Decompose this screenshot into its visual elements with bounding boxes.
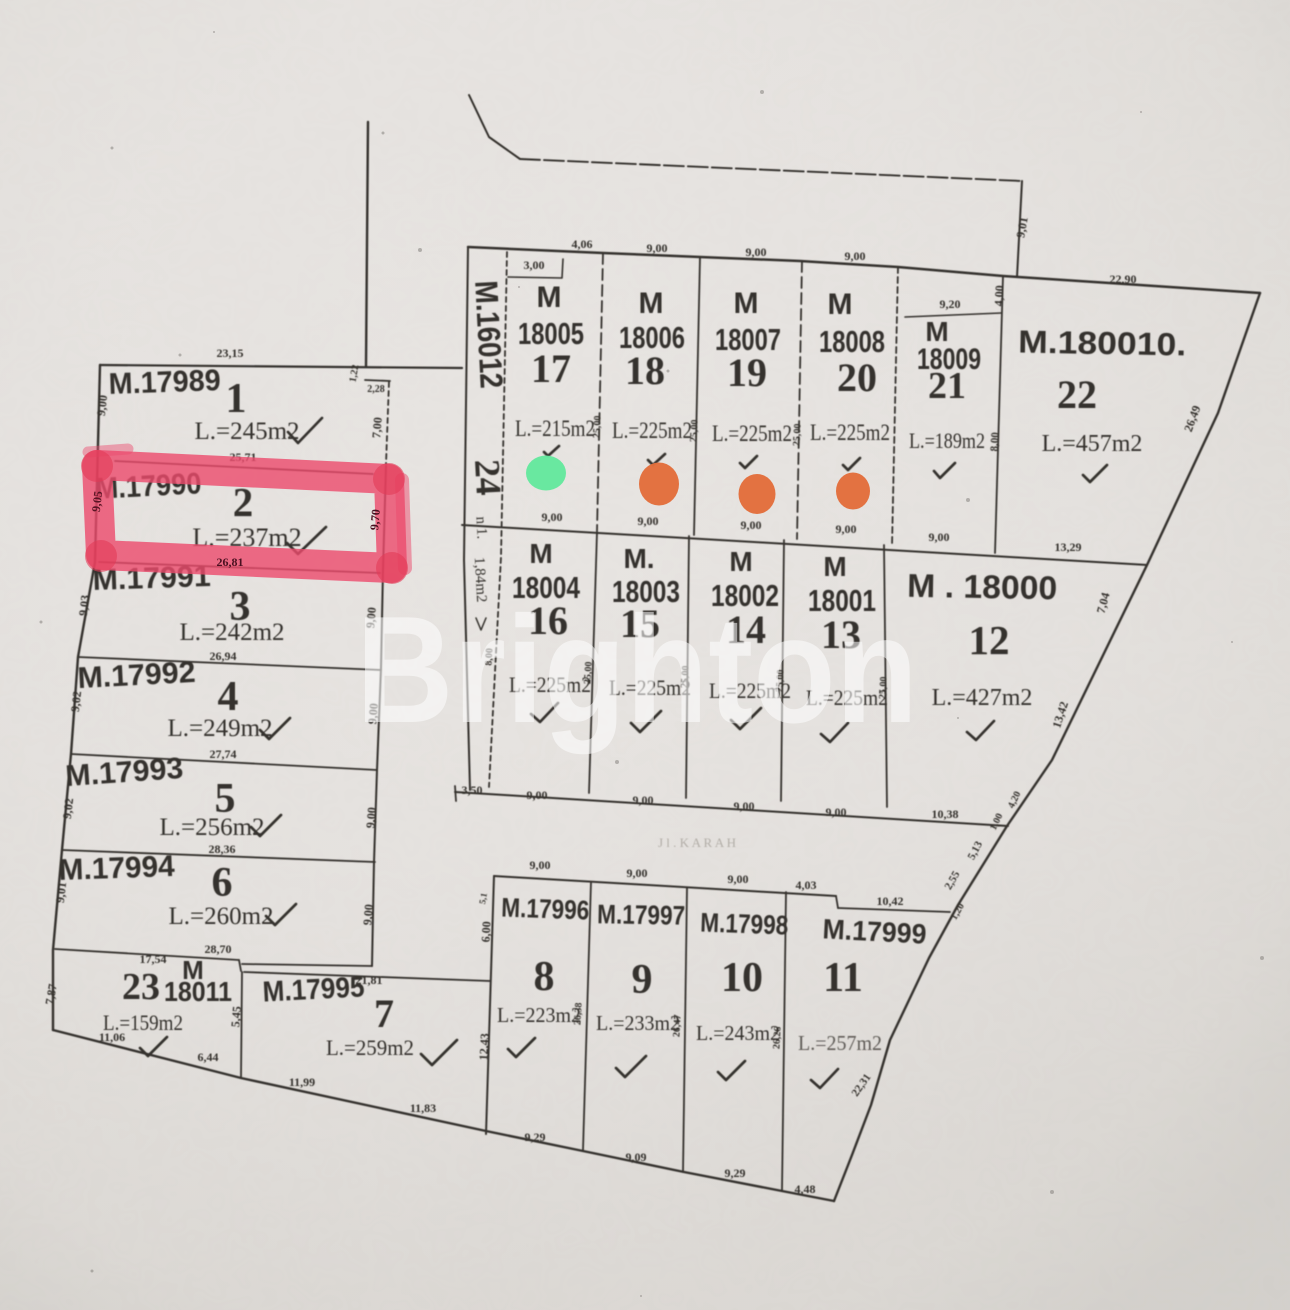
svg-text:M: M [828,288,853,321]
svg-text:19: 19 [727,350,767,395]
svg-text:9,00: 9,00 [627,866,648,880]
svg-text:L.=256m2: L.=256m2 [159,814,264,841]
svg-text:9,00: 9,00 [734,799,755,813]
svg-text:M.17995: M.17995 [262,971,366,1008]
svg-text:M.17997: M.17997 [597,899,686,931]
svg-text:3,00: 3,00 [524,258,545,272]
svg-text:9,20: 9,20 [940,297,961,311]
svg-text:9,70: 9,70 [367,509,383,531]
svg-text:M.: M. [623,543,654,574]
svg-text:18008: 18008 [819,324,885,359]
svg-text:9: 9 [632,957,653,1003]
svg-text:9,00: 9,00 [542,510,563,524]
svg-text:21,81: 21,81 [356,973,383,987]
svg-text:M: M [639,287,664,320]
svg-text:M: M [823,551,846,582]
svg-text:17: 17 [531,346,571,391]
svg-text:6,44: 6,44 [198,1050,219,1064]
svg-text:3,50: 3,50 [462,783,483,797]
svg-text:M.17989: M.17989 [108,364,221,401]
svg-text:M.17992: M.17992 [77,656,197,695]
svg-text:28,70: 28,70 [205,942,232,956]
svg-text:9,00: 9,00 [836,522,857,536]
svg-text:M.17998: M.17998 [700,907,789,940]
svg-text:7: 7 [374,991,394,1036]
svg-text:25,00: 25,00 [591,415,603,438]
svg-text:6,00: 6,00 [478,921,493,943]
svg-text:2,28: 2,28 [367,384,385,395]
svg-text:9,00: 9,00 [826,805,847,819]
svg-text:10: 10 [721,955,763,1001]
svg-text:n 1.: n 1. [472,516,489,539]
svg-text:L.=245m2: L.=245m2 [194,418,299,445]
svg-text:L.=223m2: L.=223m2 [497,1003,581,1027]
svg-text:M.17999: M.17999 [822,913,927,949]
svg-text:M.17996: M.17996 [501,892,590,925]
svg-text:M: M [734,287,759,320]
svg-text:13,29: 13,29 [1055,540,1082,554]
svg-text:9,00: 9,00 [360,904,376,926]
svg-text:1: 1 [226,376,247,422]
svg-text:L.=233m2: L.=233m2 [596,1011,680,1035]
svg-text:12,43: 12,43 [476,1033,491,1061]
svg-text:L.=189m2: L.=189m2 [909,428,985,453]
svg-text:M.16012: M.16012 [468,280,510,390]
svg-text:L.=215m2: L.=215m2 [515,416,595,441]
svg-text:11: 11 [823,955,863,1001]
svg-text:9,29: 9,29 [725,1166,746,1180]
svg-text:9,00: 9,00 [527,788,548,802]
svg-text:9,00: 9,00 [728,872,749,886]
svg-text:9,09: 9,09 [626,1150,647,1164]
svg-text:21: 21 [928,365,966,407]
svg-text:26,38: 26,38 [572,1002,584,1025]
svg-text:11,06: 11,06 [99,1030,125,1044]
svg-text:4,00: 4,00 [991,285,1006,307]
svg-text:7,00: 7,00 [369,417,385,439]
svg-text:22,90: 22,90 [1110,272,1137,286]
svg-text:26,47: 26,47 [671,1014,683,1037]
svg-text:24: 24 [467,458,509,496]
svg-text:18: 18 [625,348,665,393]
svg-text:27,74: 27,74 [210,747,237,761]
svg-text:12: 12 [969,617,1010,663]
svg-text:M . 18000: M . 18000 [907,567,1058,607]
svg-text:L.=427m2: L.=427m2 [932,685,1033,711]
svg-text:4,48: 4,48 [795,1182,816,1196]
svg-text:9,00: 9,00 [929,530,950,544]
svg-text:9,02: 9,02 [68,690,84,713]
svg-text:22: 22 [1057,372,1097,417]
svg-text:9,00: 9,00 [94,394,110,417]
svg-text:9,00: 9,00 [638,514,659,528]
svg-text:L.=243m2: L.=243m2 [696,1021,780,1045]
svg-text:18011: 18011 [164,976,232,1007]
svg-text:J l . K A R A H: J l . K A R A H [658,835,736,850]
svg-text:9,00: 9,00 [363,807,379,829]
svg-text:11,99: 11,99 [289,1075,315,1089]
svg-text:28,36: 28,36 [209,842,236,856]
svg-text:8,00: 8,00 [989,431,1002,451]
svg-text:L.=259m2: L.=259m2 [326,1035,414,1060]
svg-text:4: 4 [218,674,239,720]
svg-text:L.=242m2: L.=242m2 [179,619,284,646]
svg-text:Brighton: Brighton [356,585,918,755]
svg-text:M: M [729,546,752,577]
svg-text:26,94: 26,94 [210,649,237,663]
svg-text:M.180010.: M.180010. [1018,324,1187,363]
svg-text:L.=457m2: L.=457m2 [1042,431,1143,457]
svg-text:10,38: 10,38 [932,807,959,821]
svg-text:9,29: 9,29 [525,1130,546,1144]
svg-text:5,1: 5,1 [477,892,489,905]
svg-text:9,00: 9,00 [741,518,762,532]
svg-text:26,81: 26,81 [217,555,244,569]
svg-text:26,26: 26,26 [771,1026,783,1049]
svg-text:9,00: 9,00 [530,858,551,872]
svg-text:4,03: 4,03 [796,878,817,892]
svg-text:L.=225m2: L.=225m2 [810,420,890,445]
svg-text:M: M [537,281,562,314]
svg-text:M.17994: M.17994 [58,850,175,887]
svg-text:9,05: 9,05 [89,490,105,513]
svg-text:8: 8 [534,954,555,1000]
svg-text:5,45: 5,45 [228,1006,244,1028]
svg-text:6: 6 [212,860,233,906]
svg-text:L.=257m2: L.=257m2 [798,1031,882,1055]
svg-text:11,83: 11,83 [410,1101,436,1115]
svg-text:9,00: 9,00 [845,249,866,263]
svg-text:L.=225m2: L.=225m2 [612,418,692,443]
svg-text:9,00: 9,00 [647,241,668,255]
svg-text:4,06: 4,06 [572,237,593,251]
svg-text:23: 23 [122,966,160,1008]
svg-text:M: M [529,538,552,569]
svg-text:9,03: 9,03 [76,594,92,617]
svg-text:L.=260m2: L.=260m2 [168,903,273,930]
svg-text:25,00: 25,00 [688,419,700,442]
svg-text:9,00: 9,00 [746,245,767,259]
svg-text:25,00: 25,00 [791,423,803,446]
svg-text:L.=225m2: L.=225m2 [712,421,792,446]
svg-text:20: 20 [837,355,877,400]
svg-text:9,02: 9,02 [60,797,76,820]
svg-text:9,00: 9,00 [633,793,654,807]
svg-text:9,01: 9,01 [53,881,69,904]
svg-text:10,42: 10,42 [877,894,904,908]
svg-text:23,15: 23,15 [217,346,244,360]
svg-text:L.=249m2: L.=249m2 [167,715,272,742]
svg-text:17,54: 17,54 [140,952,167,966]
